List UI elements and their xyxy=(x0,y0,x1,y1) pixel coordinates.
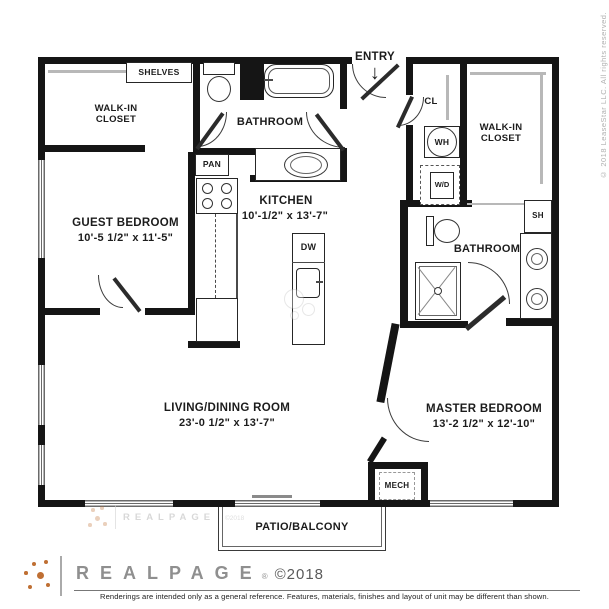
room-label-walk-in-closet-left: WALK-IN CLOSET xyxy=(58,103,174,125)
watermark-logo-text: REALPAGE xyxy=(123,512,215,523)
washer-dryer-label: W/D xyxy=(430,181,454,190)
toilet-bowl xyxy=(434,219,460,243)
room-label-kitchen: KITCHEN xyxy=(231,195,341,209)
closet-shelf-line xyxy=(48,70,126,73)
burner xyxy=(202,183,213,194)
closet-label: CL xyxy=(416,96,446,107)
watermark-dot xyxy=(91,508,95,512)
wall-segment xyxy=(406,64,413,95)
island-divider xyxy=(292,262,325,263)
wall-segment xyxy=(400,321,468,328)
bathtub-inner xyxy=(268,68,330,94)
room-dims-living-dining: 23'-0 1/2" x 13'-7" xyxy=(140,417,314,430)
shelf-label: SH xyxy=(524,211,552,220)
room-label-guest-bedroom: GUEST BEDROOM xyxy=(48,217,203,231)
tub-faucet xyxy=(264,79,273,81)
registered-mark: ® xyxy=(262,572,268,581)
logo-dot xyxy=(44,560,48,564)
wall-mech-right xyxy=(421,462,428,507)
logo-dot xyxy=(32,562,36,566)
shelves-label: SHELVES xyxy=(126,67,192,77)
wall-right xyxy=(552,57,559,507)
window xyxy=(38,160,45,258)
entry-arrow-icon: ↓ xyxy=(357,62,393,86)
dishwasher-label: DW xyxy=(292,242,325,253)
wall-segment xyxy=(367,437,387,464)
watermark-dot xyxy=(88,523,92,527)
wall-segment xyxy=(340,57,347,109)
closet-shelf-line xyxy=(470,72,546,75)
center-watermark xyxy=(282,285,327,325)
footer-rule xyxy=(74,590,580,591)
wall-top-right xyxy=(406,57,559,64)
wall-segment xyxy=(406,125,413,207)
wall-angled-master xyxy=(376,323,399,403)
burner xyxy=(221,183,232,194)
shower-drain xyxy=(434,287,442,295)
island-faucet xyxy=(316,281,323,283)
side-copyright: © 2018 LeaseStar LLC. All rights reserve… xyxy=(599,12,608,179)
toilet-tank xyxy=(426,216,434,246)
refrigerator xyxy=(196,298,238,342)
room-label-walk-in-closet-right: WALK-IN CLOSET xyxy=(456,122,546,144)
watermark-mark xyxy=(284,289,304,309)
logo-dot xyxy=(37,572,44,579)
realpage-logo: REALPAGE ® ©2018 xyxy=(76,563,324,584)
window xyxy=(430,500,513,507)
room-dims-master-bedroom: 13'-2 1/2" x 12'-10" xyxy=(408,418,560,431)
room-dims-kitchen: 10'-1/2" x 13'-7" xyxy=(230,210,340,223)
guest-door-arc xyxy=(98,275,123,308)
watermark-dot xyxy=(103,522,107,526)
wall-mech-left xyxy=(368,462,375,507)
patio-door-track xyxy=(252,495,292,498)
logo-dot xyxy=(46,583,50,587)
realpage-logo-text: REALPAGE xyxy=(76,563,263,584)
sink-basin-inner xyxy=(290,156,322,174)
footer-disclaimer: Renderings are intended only as a genera… xyxy=(100,592,549,601)
watermark-dot xyxy=(100,506,104,510)
wall-segment xyxy=(400,207,408,325)
realpage-logo-dots xyxy=(22,558,62,598)
watermark-mark xyxy=(290,311,299,320)
counter-edge xyxy=(236,214,238,298)
room-dims-guest-bedroom: 10'-5 1/2" x 11'-5" xyxy=(48,232,203,245)
room-label-living-dining: LIVING/DINING ROOM xyxy=(140,402,314,416)
watermark-copyright: ©2018 xyxy=(225,515,244,522)
water-heater-label: WH xyxy=(424,137,460,147)
room-label-bathroom-right: BATHROOM xyxy=(432,243,542,256)
logo-divider xyxy=(60,556,62,596)
toilet-tank xyxy=(203,62,235,75)
wall-segment xyxy=(340,148,347,182)
wall-segment xyxy=(145,308,195,315)
watermark-divider xyxy=(115,505,116,529)
pantry-label: PAN xyxy=(195,159,229,169)
window xyxy=(38,445,45,485)
watermark-dot xyxy=(95,516,100,521)
wall-segment xyxy=(188,341,240,348)
window xyxy=(38,365,45,425)
room-label-bathroom-top: BATHROOM xyxy=(215,116,325,129)
wall-segment xyxy=(240,57,264,100)
logo-dot xyxy=(24,571,28,575)
wall-segment xyxy=(506,318,552,326)
wall-mech-top xyxy=(368,462,428,469)
wall-left xyxy=(38,57,45,507)
toilet-bowl xyxy=(207,76,231,102)
room-label-master-bedroom: MASTER BEDROOM xyxy=(408,403,560,417)
closet-rod-line xyxy=(446,75,449,120)
logo-dot xyxy=(28,585,32,589)
footer-copyright: ©2018 xyxy=(275,566,324,583)
closet-shelf-line xyxy=(467,203,524,205)
master-bath-door-arc xyxy=(468,262,510,304)
burner xyxy=(202,198,213,209)
wall-segment xyxy=(38,308,100,315)
counter-dashed-line xyxy=(215,214,216,298)
vanity-sink-inner xyxy=(531,293,543,305)
wall-segment xyxy=(45,145,145,152)
watermark-mark xyxy=(302,303,315,316)
floor-plan-image: SHELVES PAN DW WH W/D SH MECH xyxy=(0,0,609,609)
mech-label: MECH xyxy=(379,481,415,490)
realpage-watermark: REALPAGE ©2018 xyxy=(85,505,255,531)
